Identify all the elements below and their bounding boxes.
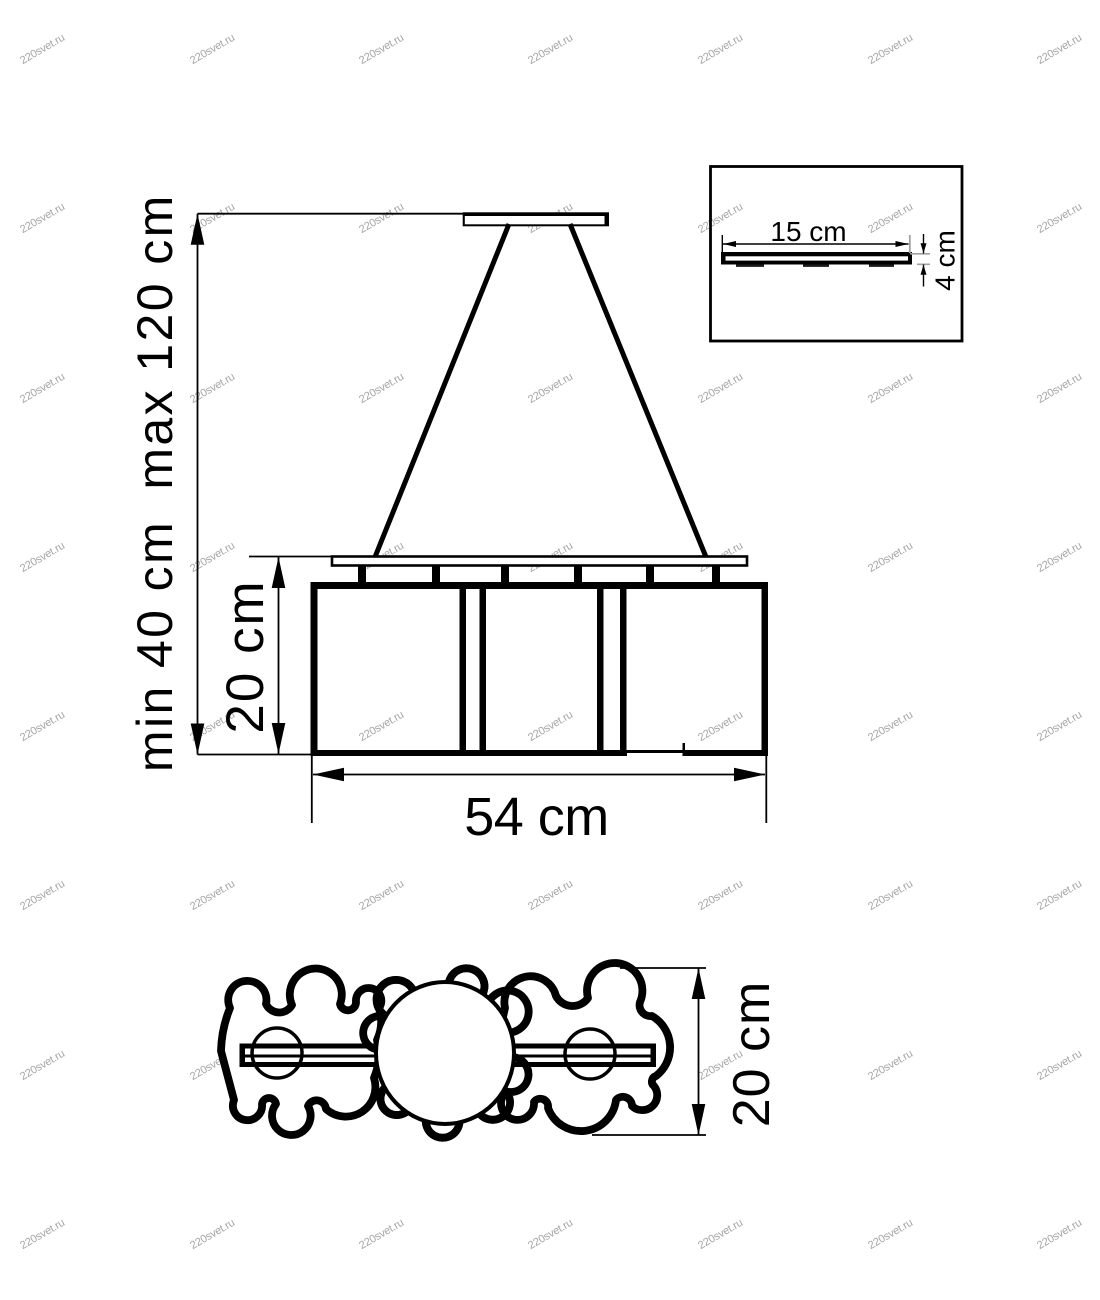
svg-text:15 cm: 15 cm [770, 216, 846, 247]
svg-text:54 cm: 54 cm [464, 787, 609, 847]
svg-text:min 40 cm: min 40 cm [127, 520, 183, 772]
svg-text:4 cm: 4 cm [930, 230, 961, 291]
svg-text:max 120 cm: max 120 cm [127, 193, 183, 489]
svg-text:20 cm: 20 cm [723, 981, 781, 1128]
svg-text:20 cm: 20 cm [216, 579, 275, 733]
